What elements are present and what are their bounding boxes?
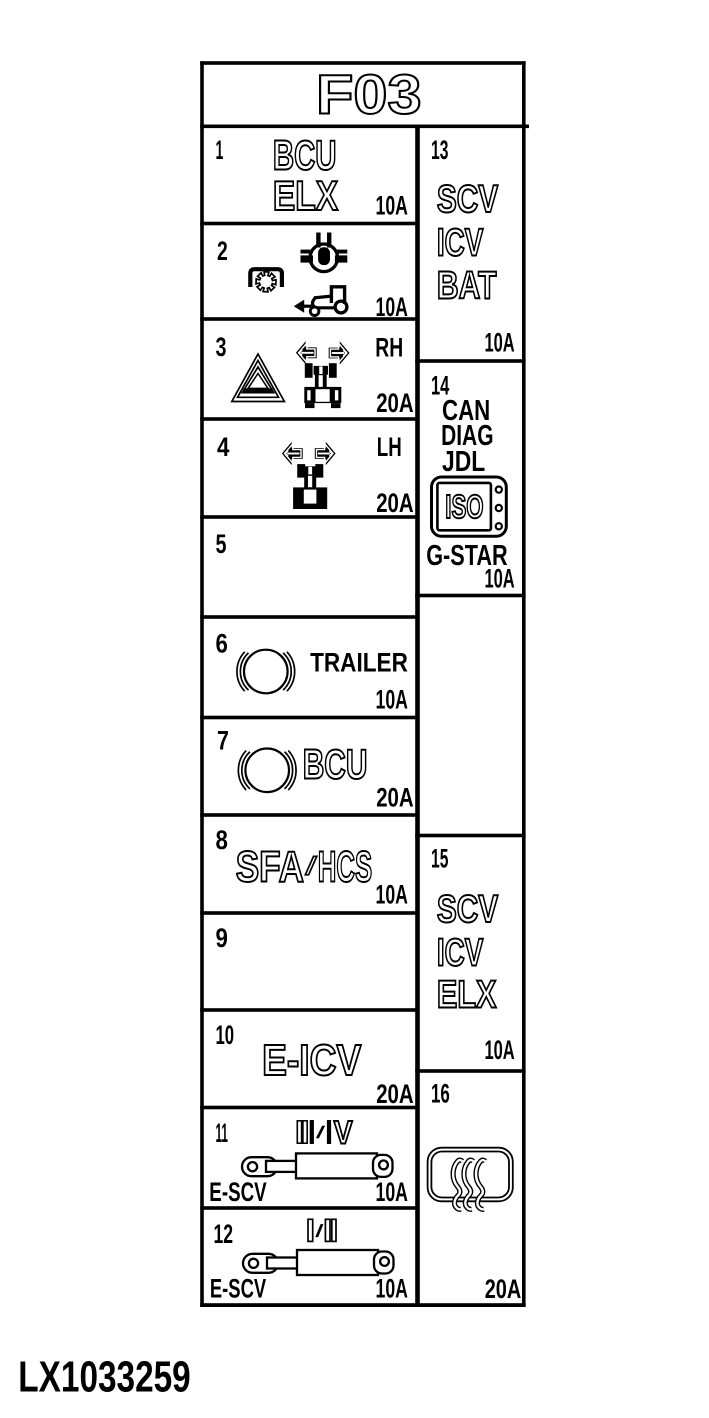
svg-text:10A: 10A [376, 190, 408, 220]
svg-text:ICV: ICV [437, 221, 484, 264]
svg-text:RH: RH [375, 332, 403, 362]
svg-text:20A: 20A [485, 1274, 522, 1304]
svg-text:4: 4 [217, 432, 229, 462]
svg-text:SCV: SCV [437, 178, 499, 221]
svg-text:JDL: JDL [442, 446, 485, 478]
svg-text:ELX: ELX [273, 172, 338, 219]
svg-text:LH: LH [377, 432, 402, 462]
svg-text:2: 2 [217, 236, 228, 266]
svg-text:3: 3 [216, 332, 227, 362]
svg-text:7: 7 [217, 726, 229, 756]
svg-text:10A: 10A [376, 879, 408, 909]
svg-text:E-ICV: E-ICV [262, 1037, 361, 1085]
svg-text:LX1033259: LX1033259 [18, 1353, 190, 1401]
svg-text:10A: 10A [376, 1274, 408, 1304]
svg-text:ICV: ICV [437, 931, 484, 974]
svg-text:9: 9 [216, 923, 228, 953]
svg-text:20A: 20A [376, 783, 413, 813]
svg-text:E-SCV: E-SCV [210, 1274, 266, 1304]
svg-text:10A: 10A [485, 563, 515, 593]
svg-text:10A: 10A [376, 292, 408, 322]
svg-text:E-SCV: E-SCV [209, 1177, 266, 1207]
svg-text:16: 16 [431, 1078, 450, 1108]
svg-text:F03: F03 [316, 64, 422, 126]
svg-text:13: 13 [431, 135, 448, 165]
svg-text:10A: 10A [376, 685, 408, 715]
svg-text:SFA: SFA [236, 844, 304, 892]
svg-text:1: 1 [216, 135, 224, 165]
svg-text:HCS: HCS [318, 844, 372, 892]
svg-text:20A: 20A [376, 1079, 413, 1109]
svg-text:10A: 10A [485, 327, 515, 357]
svg-text:ELX: ELX [437, 974, 497, 1017]
svg-text:20A: 20A [376, 388, 413, 418]
svg-text:TRAILER: TRAILER [310, 647, 408, 677]
svg-text:6: 6 [216, 629, 228, 659]
svg-text:SCV: SCV [437, 888, 499, 931]
svg-text:10A: 10A [376, 1177, 408, 1207]
svg-text:10: 10 [216, 1020, 235, 1050]
svg-text:10A: 10A [485, 1035, 515, 1065]
svg-text:5: 5 [216, 529, 227, 559]
svg-text:8: 8 [216, 825, 228, 855]
svg-text:12: 12 [214, 1219, 234, 1249]
svg-text:11: 11 [216, 1118, 228, 1148]
svg-text:BCU: BCU [303, 741, 368, 788]
svg-text:ISO: ISO [445, 489, 483, 526]
svg-text:BAT: BAT [437, 264, 497, 307]
svg-text:V: V [334, 1114, 353, 1150]
svg-text:20A: 20A [376, 488, 413, 518]
svg-text:15: 15 [431, 844, 448, 874]
